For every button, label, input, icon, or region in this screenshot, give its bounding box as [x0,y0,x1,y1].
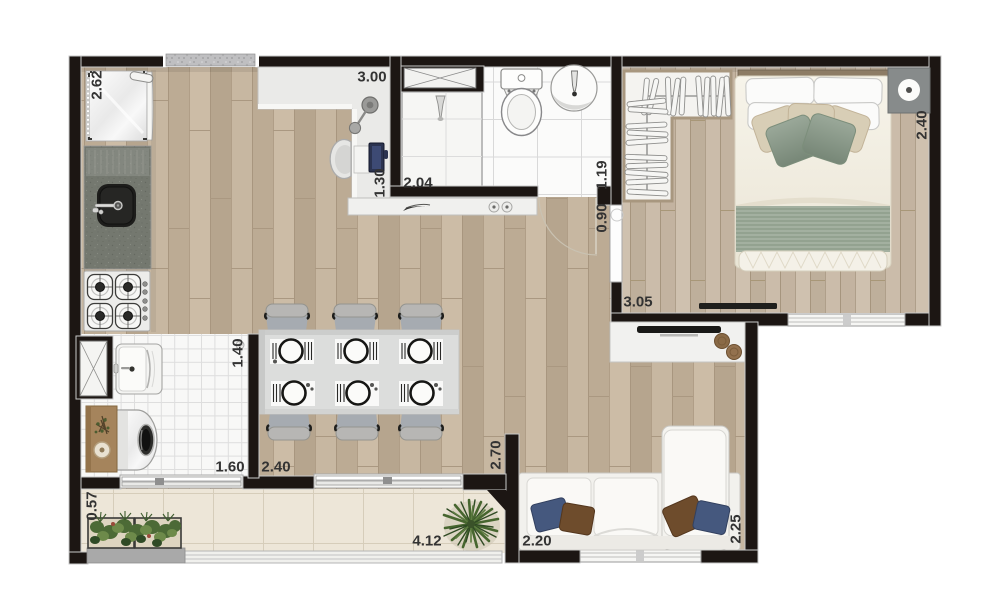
svg-text:2.25: 2.25 [728,514,745,543]
svg-text:1.40: 1.40 [230,338,247,367]
svg-text:1.30: 1.30 [372,168,389,197]
svg-text:2.20: 2.20 [522,533,551,550]
svg-text:2.40: 2.40 [261,459,290,476]
svg-text:3.05: 3.05 [623,294,652,311]
svg-text:4.12: 4.12 [412,533,441,550]
svg-text:2.04: 2.04 [403,175,433,192]
svg-text:3.00: 3.00 [357,69,386,86]
svg-text:2.70: 2.70 [488,440,505,469]
svg-text:0.57: 0.57 [84,491,101,520]
svg-text:0.90: 0.90 [594,203,611,232]
svg-text:1.19: 1.19 [594,160,611,189]
svg-text:1.60: 1.60 [215,459,244,476]
svg-text:2.62: 2.62 [89,70,106,99]
svg-text:2.40: 2.40 [914,110,931,139]
